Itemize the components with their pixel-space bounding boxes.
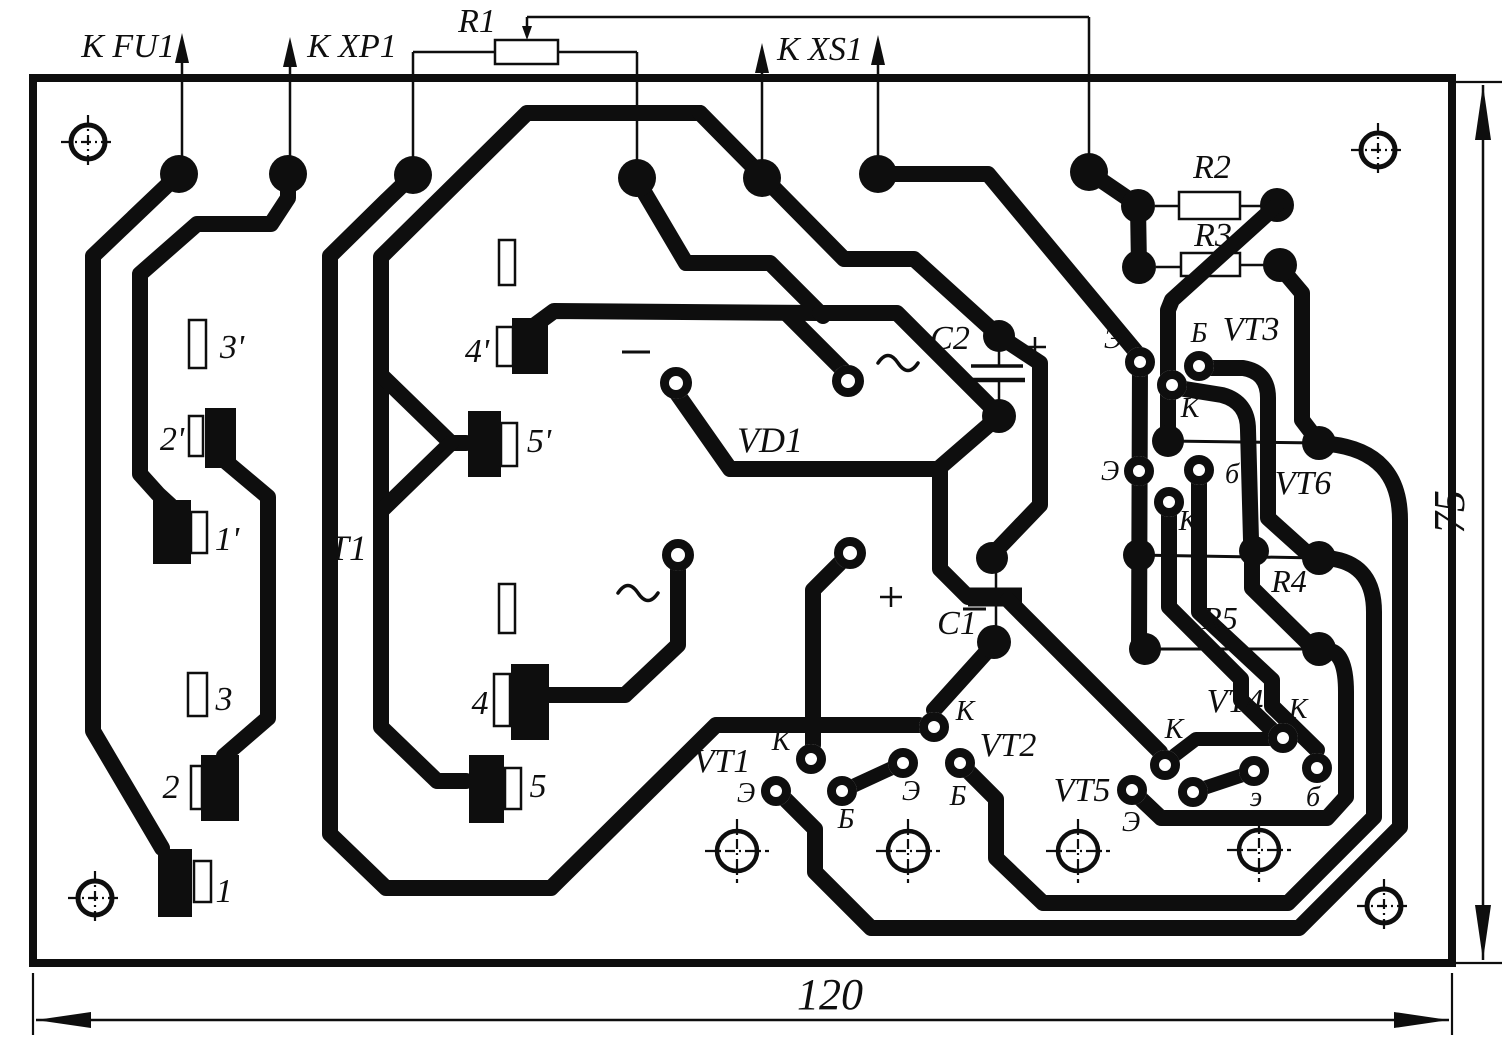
svg-text:4: 4 <box>472 685 489 722</box>
svg-text:э: э <box>1250 782 1262 813</box>
svg-text:C1: C1 <box>937 605 977 642</box>
svg-text:Б: Б <box>949 781 967 812</box>
svg-text:4': 4' <box>465 333 490 370</box>
svg-text:R4: R4 <box>1270 563 1307 599</box>
svg-text:R3: R3 <box>1193 217 1232 254</box>
svg-text:C2: C2 <box>930 320 970 357</box>
svg-text:Э: Э <box>1104 324 1122 355</box>
svg-text:К: К <box>1180 393 1201 424</box>
svg-text:3': 3' <box>219 329 245 366</box>
svg-text:VD1: VD1 <box>737 420 803 460</box>
svg-text:б: б <box>1306 782 1321 813</box>
svg-text:3: 3 <box>215 681 233 718</box>
svg-text:К XP1: К XP1 <box>306 28 397 65</box>
svg-text:5': 5' <box>527 423 552 460</box>
svg-text:2: 2 <box>163 769 180 806</box>
svg-text:Э: Э <box>902 776 920 807</box>
svg-text:Э: Э <box>737 778 755 809</box>
svg-text:К: К <box>955 696 976 727</box>
svg-text:VT1: VT1 <box>694 743 751 780</box>
svg-text:VT6: VT6 <box>1275 465 1332 502</box>
svg-text:VT4: VT4 <box>1207 683 1264 720</box>
svg-text:К: К <box>1164 714 1185 745</box>
svg-text:К XS1: К XS1 <box>776 31 863 68</box>
svg-text:Э: Э <box>1122 807 1140 838</box>
svg-text:К FU1: К FU1 <box>80 28 174 65</box>
svg-text:75: 75 <box>1425 490 1474 534</box>
svg-text:VT5: VT5 <box>1054 772 1111 809</box>
svg-text:5: 5 <box>530 768 547 805</box>
svg-text:R2: R2 <box>1192 149 1231 186</box>
svg-text:К: К <box>1178 506 1199 537</box>
svg-text:К: К <box>771 726 792 757</box>
svg-text:2': 2' <box>160 421 185 458</box>
svg-text:R1: R1 <box>457 3 496 40</box>
svg-text:VT3: VT3 <box>1223 311 1280 348</box>
svg-text:К: К <box>1288 694 1309 725</box>
svg-text:120: 120 <box>797 970 863 1019</box>
svg-text:Б: Б <box>1190 318 1208 349</box>
svg-text:Э: Э <box>1101 456 1119 487</box>
svg-text:1: 1 <box>216 873 233 910</box>
svg-text:б: б <box>1225 459 1240 490</box>
svg-text:Т1: Т1 <box>329 528 367 568</box>
svg-text:VT2: VT2 <box>980 727 1037 764</box>
svg-text:R5: R5 <box>1201 600 1238 636</box>
svg-text:1': 1' <box>215 521 240 558</box>
svg-text:Б: Б <box>837 804 855 835</box>
